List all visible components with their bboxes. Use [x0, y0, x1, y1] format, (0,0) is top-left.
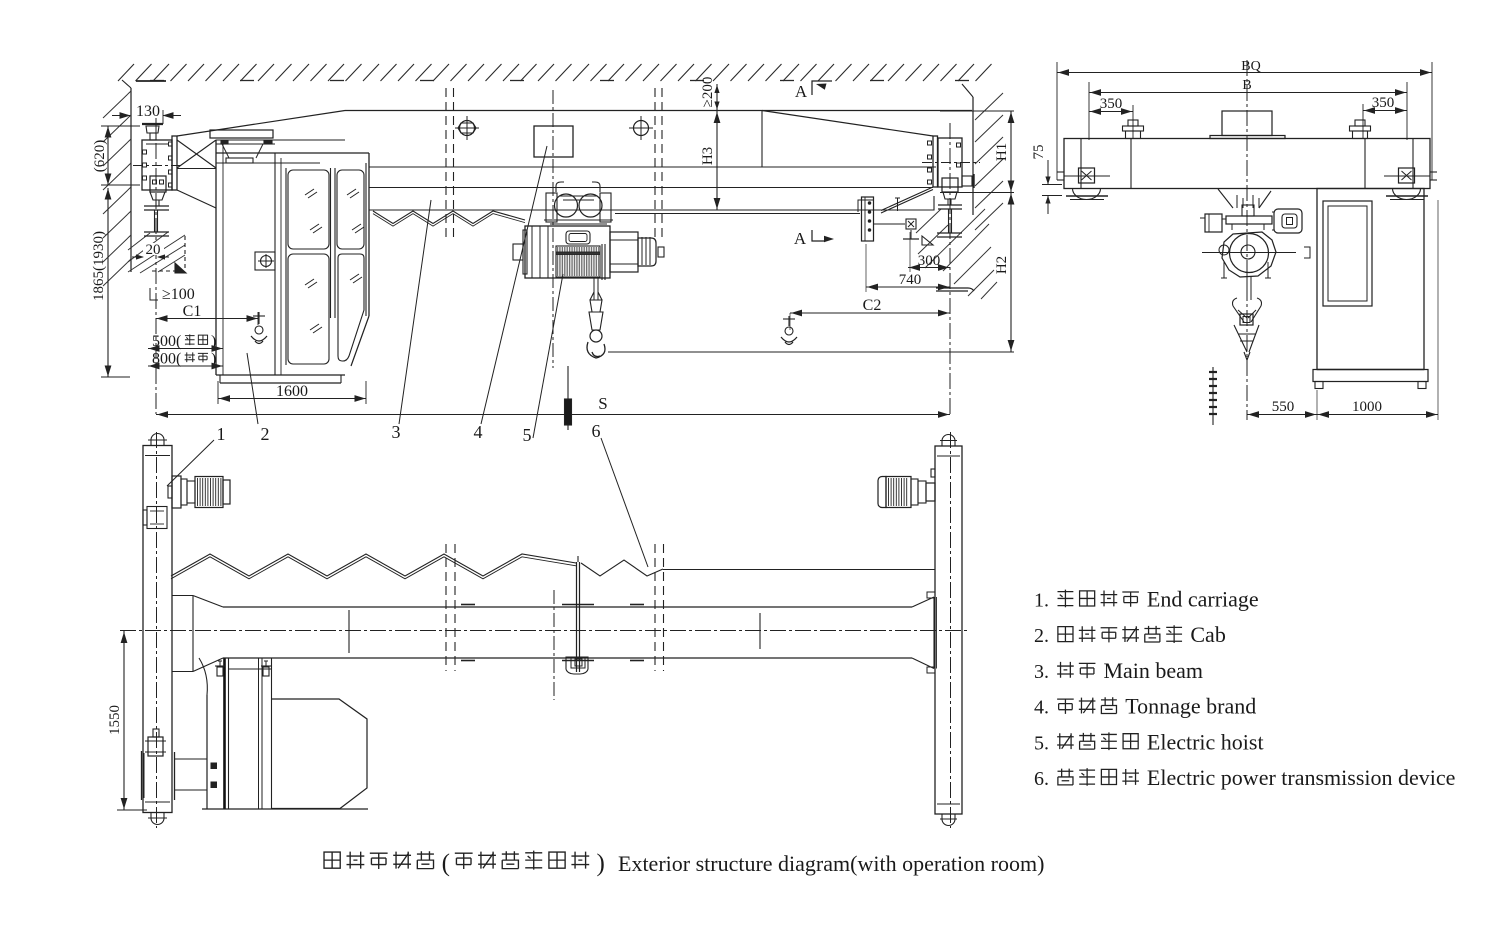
- svg-text:6: 6: [592, 421, 601, 441]
- svg-text:A: A: [795, 82, 808, 101]
- svg-text:20: 20: [146, 242, 161, 258]
- svg-text:2: 2: [261, 424, 270, 444]
- svg-text:End carriage: End carriage: [1147, 587, 1259, 612]
- svg-text:5: 5: [523, 425, 532, 445]
- svg-text:5.: 5.: [1034, 732, 1049, 754]
- svg-text:300: 300: [918, 253, 941, 269]
- svg-text:A: A: [794, 229, 807, 248]
- svg-text:): ): [597, 850, 605, 877]
- svg-text:1550: 1550: [107, 705, 123, 735]
- svg-text:3.: 3.: [1034, 661, 1049, 683]
- svg-text:1865(1930): 1865(1930): [91, 231, 107, 301]
- svg-text:130: 130: [136, 103, 160, 120]
- svg-text:2.: 2.: [1034, 625, 1049, 647]
- svg-text:BQ: BQ: [1241, 59, 1260, 74]
- svg-text:350: 350: [1100, 96, 1123, 112]
- svg-text:Exterior structure diagram(wit: Exterior structure diagram(with operatio…: [618, 851, 1044, 876]
- svg-text:4: 4: [474, 422, 483, 442]
- svg-text:≥100: ≥100: [162, 286, 195, 303]
- svg-text:≥200: ≥200: [700, 77, 716, 108]
- svg-text:6.: 6.: [1034, 768, 1049, 790]
- svg-text:1600: 1600: [276, 383, 308, 400]
- svg-text:4.: 4.: [1034, 697, 1049, 719]
- svg-text:S: S: [598, 394, 607, 413]
- svg-text:740: 740: [899, 272, 922, 288]
- svg-text:1000: 1000: [1352, 399, 1382, 415]
- svg-text:H3: H3: [700, 147, 716, 165]
- svg-text:(620): (620): [92, 140, 108, 173]
- svg-text:75: 75: [1031, 145, 1047, 160]
- svg-text:Electric hoist: Electric hoist: [1147, 729, 1264, 754]
- svg-text:Cab: Cab: [1190, 622, 1225, 647]
- svg-text:1: 1: [217, 424, 226, 444]
- svg-text:3: 3: [392, 422, 401, 442]
- svg-text:Electric power transmission de: Electric power transmission device: [1147, 765, 1456, 790]
- svg-text:H2: H2: [994, 256, 1010, 274]
- svg-text:C2: C2: [863, 297, 882, 314]
- svg-text:(: (: [442, 850, 450, 877]
- svg-text:Tonnage brand: Tonnage brand: [1125, 694, 1256, 719]
- svg-text:550: 550: [1272, 399, 1295, 415]
- svg-text:1.: 1.: [1034, 590, 1049, 612]
- svg-text:C1: C1: [183, 303, 202, 320]
- svg-text:350: 350: [1372, 95, 1395, 111]
- svg-text:H1: H1: [994, 143, 1010, 161]
- svg-text:Main beam: Main beam: [1103, 658, 1203, 683]
